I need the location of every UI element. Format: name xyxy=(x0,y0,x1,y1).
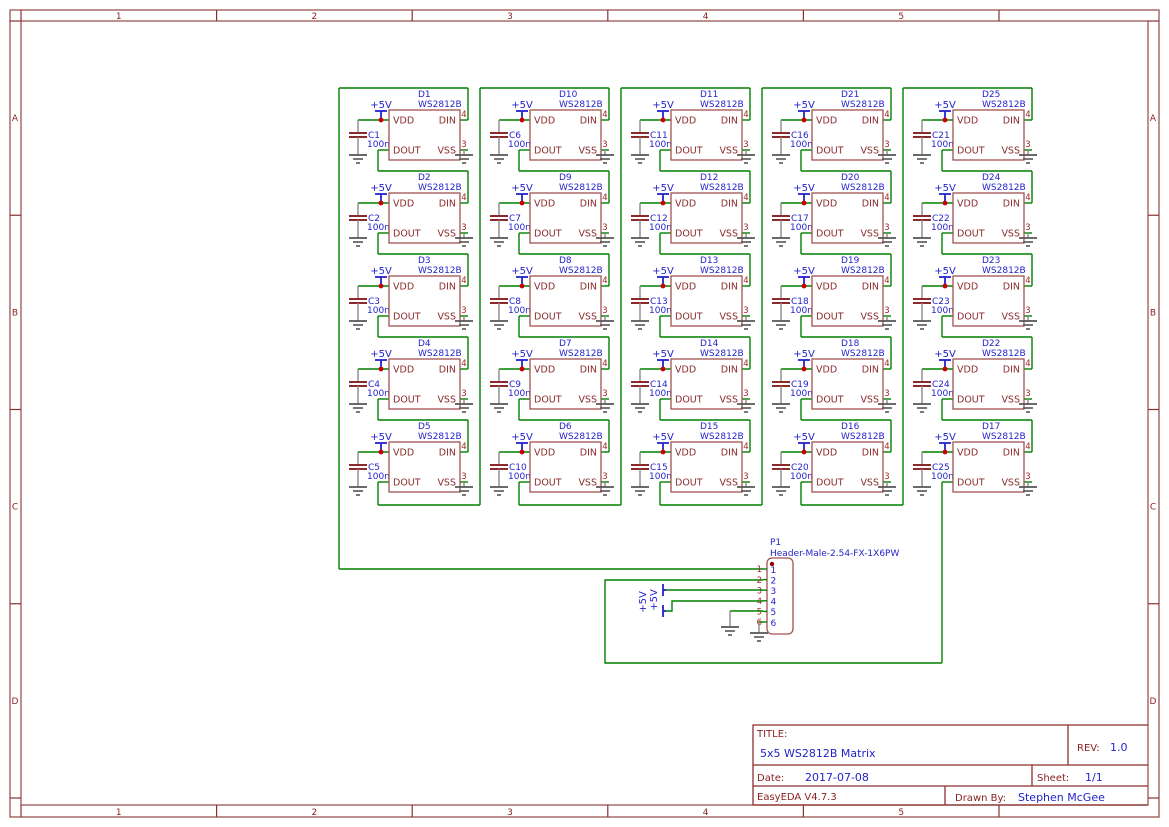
pin-label-vdd: VDD xyxy=(816,448,837,459)
rev-value: 1.0 xyxy=(1110,741,1128,754)
ws2812b-cell[interactable]: +5V C22 100nF D24 WS2812B VDD DIN DOUT V… xyxy=(913,171,1037,254)
pin-label-vdd: VDD xyxy=(393,116,414,127)
power-net-label-vertical: +5V xyxy=(649,589,660,611)
pin-label-din: DIN xyxy=(721,116,738,127)
pin-number-din: 4 xyxy=(884,442,889,452)
pin-number-vss: 3 xyxy=(743,306,748,316)
junction-dot xyxy=(520,450,525,455)
pin-label-vss: VSS xyxy=(1001,146,1020,157)
ruler-col-number: 1 xyxy=(116,12,122,22)
pin-number-din: 4 xyxy=(884,110,889,120)
ws2812b-cell[interactable]: +5V C13 100nF D13 WS2812B VDD DIN DOUT V… xyxy=(631,254,755,337)
pin-label-dout: DOUT xyxy=(675,229,703,240)
pin-number-vss: 3 xyxy=(461,389,466,399)
pin-label-vdd: VDD xyxy=(534,282,555,293)
junction-dot xyxy=(943,367,948,372)
part-name: WS2812B xyxy=(559,266,603,276)
pin-label-vss: VSS xyxy=(1001,229,1020,240)
wire-p1-pin4-5v xyxy=(666,601,763,611)
pin-number-vss: 3 xyxy=(461,306,466,316)
rev-label: REV: xyxy=(1077,743,1100,754)
pin-number-din: 4 xyxy=(1025,193,1030,203)
pin-number-din: 4 xyxy=(461,442,466,452)
junction-dot xyxy=(520,367,525,372)
led-refdes: D10 xyxy=(559,90,578,100)
pin-number-vss: 3 xyxy=(602,472,607,482)
ruler-col-number: 4 xyxy=(703,808,709,818)
pin-number-vss: 3 xyxy=(1025,223,1030,233)
pin-label-vdd: VDD xyxy=(675,282,696,293)
pin-label-dout: DOUT xyxy=(393,395,421,406)
ground-symbol xyxy=(913,238,931,246)
part-name: WS2812B xyxy=(982,183,1026,193)
junction-dot xyxy=(943,284,948,289)
pin-label-din: DIN xyxy=(439,116,456,127)
connector-pin-number-inner: 2 xyxy=(771,576,777,586)
part-name: WS2812B xyxy=(982,266,1026,276)
led-refdes: D11 xyxy=(700,90,718,100)
part-name: WS2812B xyxy=(841,349,885,359)
pin-label-dout: DOUT xyxy=(393,229,421,240)
pin-label-dout: DOUT xyxy=(816,146,844,157)
pin-label-din: DIN xyxy=(439,282,456,293)
ground-symbol xyxy=(490,487,508,495)
pin-number-din: 4 xyxy=(461,110,466,120)
pin-number-din: 4 xyxy=(461,193,466,203)
pin-label-dout: DOUT xyxy=(957,312,985,323)
pin-label-vss: VSS xyxy=(719,478,738,489)
pin-number-vss: 3 xyxy=(1025,389,1030,399)
pin-label-dout: DOUT xyxy=(957,395,985,406)
pin-number-din: 4 xyxy=(884,276,889,286)
pin-label-dout: DOUT xyxy=(957,478,985,489)
ground-symbol xyxy=(721,627,739,635)
sheet-title: 5x5 WS2812B Matrix xyxy=(760,747,876,760)
ruler-row-letter: D xyxy=(12,697,19,707)
ws2812b-cell[interactable]: +5V C21 100nF D25 WS2812B VDD DIN DOUT V… xyxy=(903,88,1037,171)
part-name: WS2812B xyxy=(841,100,885,110)
pin-label-dout: DOUT xyxy=(957,229,985,240)
pin-number-din: 4 xyxy=(743,110,748,120)
ruler-row-letter: C xyxy=(12,503,18,513)
pin-label-dout: DOUT xyxy=(816,395,844,406)
pin-number-din: 4 xyxy=(461,276,466,286)
power-net-label: +5V xyxy=(370,100,392,111)
power-net-label: +5V xyxy=(652,100,674,111)
ruler-col-number: 5 xyxy=(898,12,904,22)
title-block: TITLE: 5x5 WS2812B Matrix REV: 1.0 Date:… xyxy=(753,725,1148,805)
ground-symbol xyxy=(750,633,768,641)
power-net-label-vertical: +5V xyxy=(638,591,649,613)
pin-label-dout: DOUT xyxy=(534,395,562,406)
pin-label-vdd: VDD xyxy=(816,282,837,293)
junction-dot xyxy=(379,367,384,372)
pin-label-vdd: VDD xyxy=(534,365,555,376)
ws2812b-cell[interactable]: +5V C20 100nF D16 WS2812B VDD DIN DOUT V… xyxy=(772,420,896,505)
ws2812b-cell[interactable]: +5V C1 100nF D1 WS2812B VDD DIN DOUT VSS… xyxy=(339,88,473,171)
connector-pin-number-outer: 5 xyxy=(757,608,762,618)
ground-symbol xyxy=(349,404,367,412)
pin-label-vss: VSS xyxy=(1001,478,1020,489)
pin-label-din: DIN xyxy=(1003,199,1020,210)
ground-symbol xyxy=(490,404,508,412)
ground-symbol xyxy=(631,155,649,163)
pin-number-vss: 3 xyxy=(743,140,748,150)
ruler-row-letter: C xyxy=(1150,503,1156,513)
ws2812b-cell[interactable]: +5V C11 100nF D11 WS2812B VDD DIN DOUT V… xyxy=(621,88,755,171)
led-refdes: D24 xyxy=(982,173,1001,183)
part-name: WS2812B xyxy=(841,266,885,276)
connector-pin-number-inner: 4 xyxy=(771,598,777,608)
ws2812b-cell[interactable]: +5V C3 100nF D3 WS2812B VDD DIN DOUT VSS… xyxy=(349,254,473,337)
led-refdes: D1 xyxy=(418,90,431,100)
pin-label-vdd: VDD xyxy=(957,282,978,293)
connector-pin-number-inner: 5 xyxy=(771,608,777,618)
pin-label-dout: DOUT xyxy=(675,312,703,323)
connector-pin-number-outer: 3 xyxy=(757,586,762,596)
ws2812b-cell[interactable]: +5V C14 100nF D14 WS2812B VDD DIN DOUT V… xyxy=(631,337,755,420)
pin-label-vss: VSS xyxy=(1001,395,1020,406)
pin-label-dout: DOUT xyxy=(534,312,562,323)
junction-dot xyxy=(943,118,948,123)
ws2812b-cell[interactable]: +5V C25 100nF D17 WS2812B VDD DIN DOUT V… xyxy=(913,420,1037,663)
pin-label-din: DIN xyxy=(721,448,738,459)
schematic-canvas: 1122334455AABBCCDD xyxy=(0,0,1169,827)
date-label: Date: xyxy=(757,773,784,784)
led-refdes: D17 xyxy=(982,422,1000,432)
junction-dot xyxy=(379,284,384,289)
pin-label-vdd: VDD xyxy=(816,199,837,210)
connector-pin-number-outer: 1 xyxy=(757,565,762,575)
pin-label-vdd: VDD xyxy=(957,199,978,210)
pin-label-vdd: VDD xyxy=(957,448,978,459)
pin-number-vss: 3 xyxy=(743,223,748,233)
title-label: TITLE: xyxy=(756,729,787,740)
junction-dot xyxy=(379,201,384,206)
part-name: WS2812B xyxy=(418,100,462,110)
drawn-by-label: Drawn By: xyxy=(955,793,1006,804)
ground-symbol xyxy=(913,155,931,163)
ruler-row-letter: B xyxy=(1150,308,1156,318)
pin-label-vdd: VDD xyxy=(675,448,696,459)
ruler-col-number: 5 xyxy=(898,808,904,818)
led-refdes: D13 xyxy=(700,256,718,266)
ground-symbol xyxy=(913,404,931,412)
drawn-by-value: Stephen McGee xyxy=(1018,791,1105,804)
part-name: WS2812B xyxy=(559,349,603,359)
pin-label-din: DIN xyxy=(1003,116,1020,127)
pin-label-vss: VSS xyxy=(578,229,597,240)
ground-symbol xyxy=(490,155,508,163)
power-net-label: +5V xyxy=(511,100,533,111)
ruler-col-number: 2 xyxy=(312,12,318,22)
pin-label-din: DIN xyxy=(580,448,597,459)
led-refdes: D9 xyxy=(559,173,572,183)
led-refdes: D8 xyxy=(559,256,572,266)
led-refdes: D4 xyxy=(418,339,431,349)
ground-symbol xyxy=(772,404,790,412)
ws2812b-cell[interactable]: +5V C2 100nF D2 WS2812B VDD DIN DOUT VSS… xyxy=(349,171,473,254)
pin-number-vss: 3 xyxy=(743,389,748,399)
pin-label-vdd: VDD xyxy=(534,199,555,210)
ground-symbol xyxy=(913,321,931,329)
led-refdes: D18 xyxy=(841,339,860,349)
pin-number-din: 4 xyxy=(602,359,607,369)
led-refdes: D16 xyxy=(841,422,860,432)
part-name: WS2812B xyxy=(418,432,462,442)
pin-label-vdd: VDD xyxy=(957,365,978,376)
pin-label-vdd: VDD xyxy=(816,116,837,127)
pin-number-din: 4 xyxy=(461,359,466,369)
junction-dot xyxy=(802,450,807,455)
ground-symbol xyxy=(772,155,790,163)
part-name: WS2812B xyxy=(700,349,744,359)
pin-number-din: 4 xyxy=(1025,442,1030,452)
connector-pin-number-inner: 6 xyxy=(771,619,777,629)
junction-dot xyxy=(802,201,807,206)
ground-symbol xyxy=(349,238,367,246)
part-name: WS2812B xyxy=(559,100,603,110)
junction-dot xyxy=(520,118,525,123)
tool-version: EasyEDA V4.7.3 xyxy=(757,792,837,803)
pin-number-din: 4 xyxy=(884,193,889,203)
ws2812b-cell[interactable]: +5V C24 100nF D22 WS2812B VDD DIN DOUT V… xyxy=(913,337,1037,420)
pin-label-din: DIN xyxy=(721,199,738,210)
pin-number-din: 4 xyxy=(602,110,607,120)
pin-label-vss: VSS xyxy=(719,229,738,240)
junction-dot xyxy=(379,118,384,123)
ruler-col-number: 3 xyxy=(507,808,513,818)
junction-dot xyxy=(943,201,948,206)
junction-dot xyxy=(661,284,666,289)
schematic-sheet: 1122334455AABBCCDD xyxy=(0,0,1169,827)
ruler-row-letter: B xyxy=(12,308,18,318)
pin-label-dout: DOUT xyxy=(816,478,844,489)
ws2812b-cell[interactable]: +5V C10 100nF D6 WS2812B VDD DIN DOUT VS… xyxy=(490,420,614,505)
led-refdes: D14 xyxy=(700,339,719,349)
pin-label-vdd: VDD xyxy=(393,365,414,376)
pin-label-vss: VSS xyxy=(437,312,456,323)
pin-label-dout: DOUT xyxy=(816,312,844,323)
junction-dot xyxy=(661,450,666,455)
led-refdes: D7 xyxy=(559,339,572,349)
pin-number-din: 4 xyxy=(743,359,748,369)
part-name: WS2812B xyxy=(982,100,1026,110)
ruler-col-number: 1 xyxy=(116,808,122,818)
pin-number-vss: 3 xyxy=(1025,306,1030,316)
ws2812b-cell[interactable]: +5V C17 100nF D20 WS2812B VDD DIN DOUT V… xyxy=(772,171,896,254)
ground-symbol xyxy=(631,404,649,412)
pin-number-din: 4 xyxy=(602,193,607,203)
pin-label-vss: VSS xyxy=(860,312,879,323)
ws2812b-cell[interactable]: +5V C15 100nF D15 WS2812B VDD DIN DOUT V… xyxy=(631,420,755,505)
led-refdes: D5 xyxy=(418,422,431,432)
ruler-row-letter: D xyxy=(1150,697,1157,707)
pin-label-vdd: VDD xyxy=(534,116,555,127)
pin-number-vss: 3 xyxy=(1025,140,1030,150)
ground-symbol xyxy=(631,487,649,495)
pin-number-vss: 3 xyxy=(884,306,889,316)
date-value: 2017-07-08 xyxy=(805,771,869,784)
part-name: WS2812B xyxy=(982,432,1026,442)
pin-label-dout: DOUT xyxy=(675,395,703,406)
pin-label-vss: VSS xyxy=(1001,312,1020,323)
pin-label-din: DIN xyxy=(721,282,738,293)
junction-dot xyxy=(802,284,807,289)
junction-dot xyxy=(661,118,666,123)
ws2812b-cell[interactable]: +5V C4 100nF D4 WS2812B VDD DIN DOUT VSS… xyxy=(349,337,473,420)
part-name: WS2812B xyxy=(418,266,462,276)
connector-p1[interactable]: P1 Header-Male-2.54-FX-1X6PW 11223344556… xyxy=(638,538,899,641)
ws2812b-cell[interactable]: +5V C12 100nF D12 WS2812B VDD DIN DOUT V… xyxy=(631,171,755,254)
pin-label-din: DIN xyxy=(862,282,879,293)
pin-number-vss: 3 xyxy=(884,472,889,482)
pin-label-dout: DOUT xyxy=(675,478,703,489)
pin-number-vss: 3 xyxy=(1025,472,1030,482)
part-name: WS2812B xyxy=(841,432,885,442)
pin-label-dout: DOUT xyxy=(393,478,421,489)
ground-symbol xyxy=(349,487,367,495)
ruler-col-number: 3 xyxy=(507,12,513,22)
part-name: WS2812B xyxy=(982,349,1026,359)
pin-number-din: 4 xyxy=(602,276,607,286)
connector-pin-number-inner: 1 xyxy=(771,566,777,576)
pin-label-vdd: VDD xyxy=(816,365,837,376)
pin-label-vss: VSS xyxy=(578,146,597,157)
pin-label-din: DIN xyxy=(580,365,597,376)
pin-label-din: DIN xyxy=(439,199,456,210)
ws2812b-cell[interactable]: +5V C8 100nF D8 WS2812B VDD DIN DOUT VSS… xyxy=(490,254,614,337)
junction-dot xyxy=(943,450,948,455)
pin-label-din: DIN xyxy=(862,116,879,127)
ruler-row-letter: A xyxy=(1150,114,1157,124)
junction-dot xyxy=(661,367,666,372)
ground-symbol xyxy=(490,238,508,246)
pin-number-din: 4 xyxy=(743,193,748,203)
led-refdes: D15 xyxy=(700,422,718,432)
part-name: WS2812B xyxy=(700,432,744,442)
pin-label-din: DIN xyxy=(1003,282,1020,293)
ground-symbol xyxy=(913,487,931,495)
pin-number-din: 4 xyxy=(1025,110,1030,120)
pin-label-dout: DOUT xyxy=(534,146,562,157)
pin-label-vdd: VDD xyxy=(393,448,414,459)
junction-dot xyxy=(520,201,525,206)
ground-symbol xyxy=(349,155,367,163)
power-net-label: +5V xyxy=(793,100,815,111)
pin-label-din: DIN xyxy=(580,199,597,210)
led-refdes: D22 xyxy=(982,339,1000,349)
pin-label-dout: DOUT xyxy=(534,229,562,240)
pin-number-vss: 3 xyxy=(461,223,466,233)
pin-label-dout: DOUT xyxy=(816,229,844,240)
led-refdes: D20 xyxy=(841,173,860,183)
ws2812b-cell[interactable]: +5V C18 100nF D19 WS2812B VDD DIN DOUT V… xyxy=(772,254,896,337)
led-refdes: D3 xyxy=(418,256,431,266)
pin-label-vss: VSS xyxy=(860,478,879,489)
pin-number-din: 4 xyxy=(602,442,607,452)
pin-number-vss: 3 xyxy=(461,472,466,482)
part-name: WS2812B xyxy=(700,100,744,110)
part-name: WS2812B xyxy=(418,349,462,359)
pin-number-din: 4 xyxy=(1025,276,1030,286)
led-refdes: D25 xyxy=(982,90,1000,100)
pin-label-vss: VSS xyxy=(437,478,456,489)
sheet-value: 1/1 xyxy=(1085,771,1103,784)
pin-label-dout: DOUT xyxy=(957,146,985,157)
led-refdes: D12 xyxy=(700,173,718,183)
ws2812b-cell[interactable]: +5V C7 100nF D9 WS2812B VDD DIN DOUT VSS… xyxy=(490,171,614,254)
pin-label-din: DIN xyxy=(439,448,456,459)
pin-label-din: DIN xyxy=(1003,448,1020,459)
part-name: WS2812B xyxy=(559,432,603,442)
pin-label-vss: VSS xyxy=(437,229,456,240)
pin-number-vss: 3 xyxy=(602,306,607,316)
pin-label-vss: VSS xyxy=(578,478,597,489)
junction-dot xyxy=(520,284,525,289)
pin-number-vss: 3 xyxy=(461,140,466,150)
pin-label-dout: DOUT xyxy=(393,312,421,323)
connector-pin-number-inner: 3 xyxy=(771,587,777,597)
ws2812b-cell[interactable]: +5V C6 100nF D10 WS2812B VDD DIN DOUT VS… xyxy=(480,88,614,171)
pin-number-vss: 3 xyxy=(602,140,607,150)
ws2812b-cell[interactable]: +5V C5 100nF D5 WS2812B VDD DIN DOUT VSS… xyxy=(349,420,473,505)
led-refdes: D21 xyxy=(841,90,859,100)
pin-label-din: DIN xyxy=(580,116,597,127)
pin-label-vdd: VDD xyxy=(393,282,414,293)
led-matrix: +5V C1 100nF D1 WS2812B VDD DIN DOUT VSS… xyxy=(339,88,1037,663)
pin-number-din: 4 xyxy=(743,442,748,452)
ruler-col-number: 2 xyxy=(312,808,318,818)
pin-number-din: 4 xyxy=(1025,359,1030,369)
pin-label-din: DIN xyxy=(862,199,879,210)
ws2812b-cell[interactable]: +5V C19 100nF D18 WS2812B VDD DIN DOUT V… xyxy=(772,337,896,420)
ws2812b-cell[interactable]: +5V C23 100nF D23 WS2812B VDD DIN DOUT V… xyxy=(913,254,1037,337)
power-net-label: +5V xyxy=(934,100,956,111)
ground-symbol xyxy=(772,321,790,329)
pin-label-vss: VSS xyxy=(860,395,879,406)
junction-dot xyxy=(379,450,384,455)
pin-label-vdd: VDD xyxy=(957,116,978,127)
pin-number-vss: 3 xyxy=(743,472,748,482)
pin-number-vss: 3 xyxy=(884,140,889,150)
pin-label-dout: DOUT xyxy=(534,478,562,489)
pin-label-vdd: VDD xyxy=(534,448,555,459)
led-refdes: D6 xyxy=(559,422,572,432)
junction-dot xyxy=(802,118,807,123)
pin-label-din: DIN xyxy=(721,365,738,376)
ruler-row-letter: A xyxy=(12,114,19,124)
ws2812b-cell[interactable]: +5V C16 100nF D21 WS2812B VDD DIN DOUT V… xyxy=(762,88,896,171)
pin-number-vss: 3 xyxy=(884,389,889,399)
led-refdes: D2 xyxy=(418,173,431,183)
junction-dot xyxy=(661,201,666,206)
part-name: WS2812B xyxy=(418,183,462,193)
pin-label-vdd: VDD xyxy=(393,199,414,210)
ground-symbol xyxy=(772,238,790,246)
pin-label-vss: VSS xyxy=(719,312,738,323)
sheet-label: Sheet: xyxy=(1037,773,1069,784)
connector-pin-number-outer: 4 xyxy=(757,597,762,607)
pin-number-vss: 3 xyxy=(602,223,607,233)
ws2812b-cell[interactable]: +5V C9 100nF D7 WS2812B VDD DIN DOUT VSS… xyxy=(490,337,614,420)
ruler-col-number: 4 xyxy=(703,12,709,22)
ground-symbol xyxy=(349,321,367,329)
part-name: WS2812B xyxy=(700,266,744,276)
pin-label-vss: VSS xyxy=(860,146,879,157)
pin-label-vss: VSS xyxy=(578,395,597,406)
led-refdes: D19 xyxy=(841,256,860,266)
